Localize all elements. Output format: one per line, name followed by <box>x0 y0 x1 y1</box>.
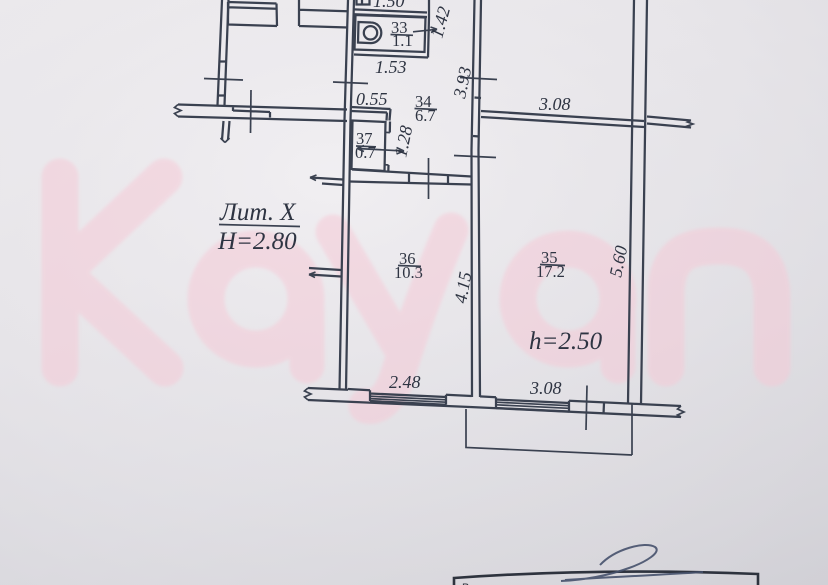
svg-text:h=2.50: h=2.50 <box>529 328 603 355</box>
svg-text:0.55: 0.55 <box>356 89 388 109</box>
svg-text:1.53: 1.53 <box>375 57 407 77</box>
svg-text:6.7: 6.7 <box>415 106 436 125</box>
svg-text:Лит. X: Лит. X <box>219 199 297 226</box>
svg-text:10.3: 10.3 <box>394 263 423 282</box>
svg-text:3.08: 3.08 <box>529 378 562 398</box>
svg-text:Н=2.80: Н=2.80 <box>217 228 297 255</box>
svg-text:1.1: 1.1 <box>392 31 413 50</box>
svg-text:2.48: 2.48 <box>389 372 421 392</box>
svg-text:0.7: 0.7 <box>355 143 376 162</box>
svg-text:3.08: 3.08 <box>538 94 571 114</box>
svg-text:17.2: 17.2 <box>536 262 565 281</box>
svg-text:1.50: 1.50 <box>373 0 405 11</box>
